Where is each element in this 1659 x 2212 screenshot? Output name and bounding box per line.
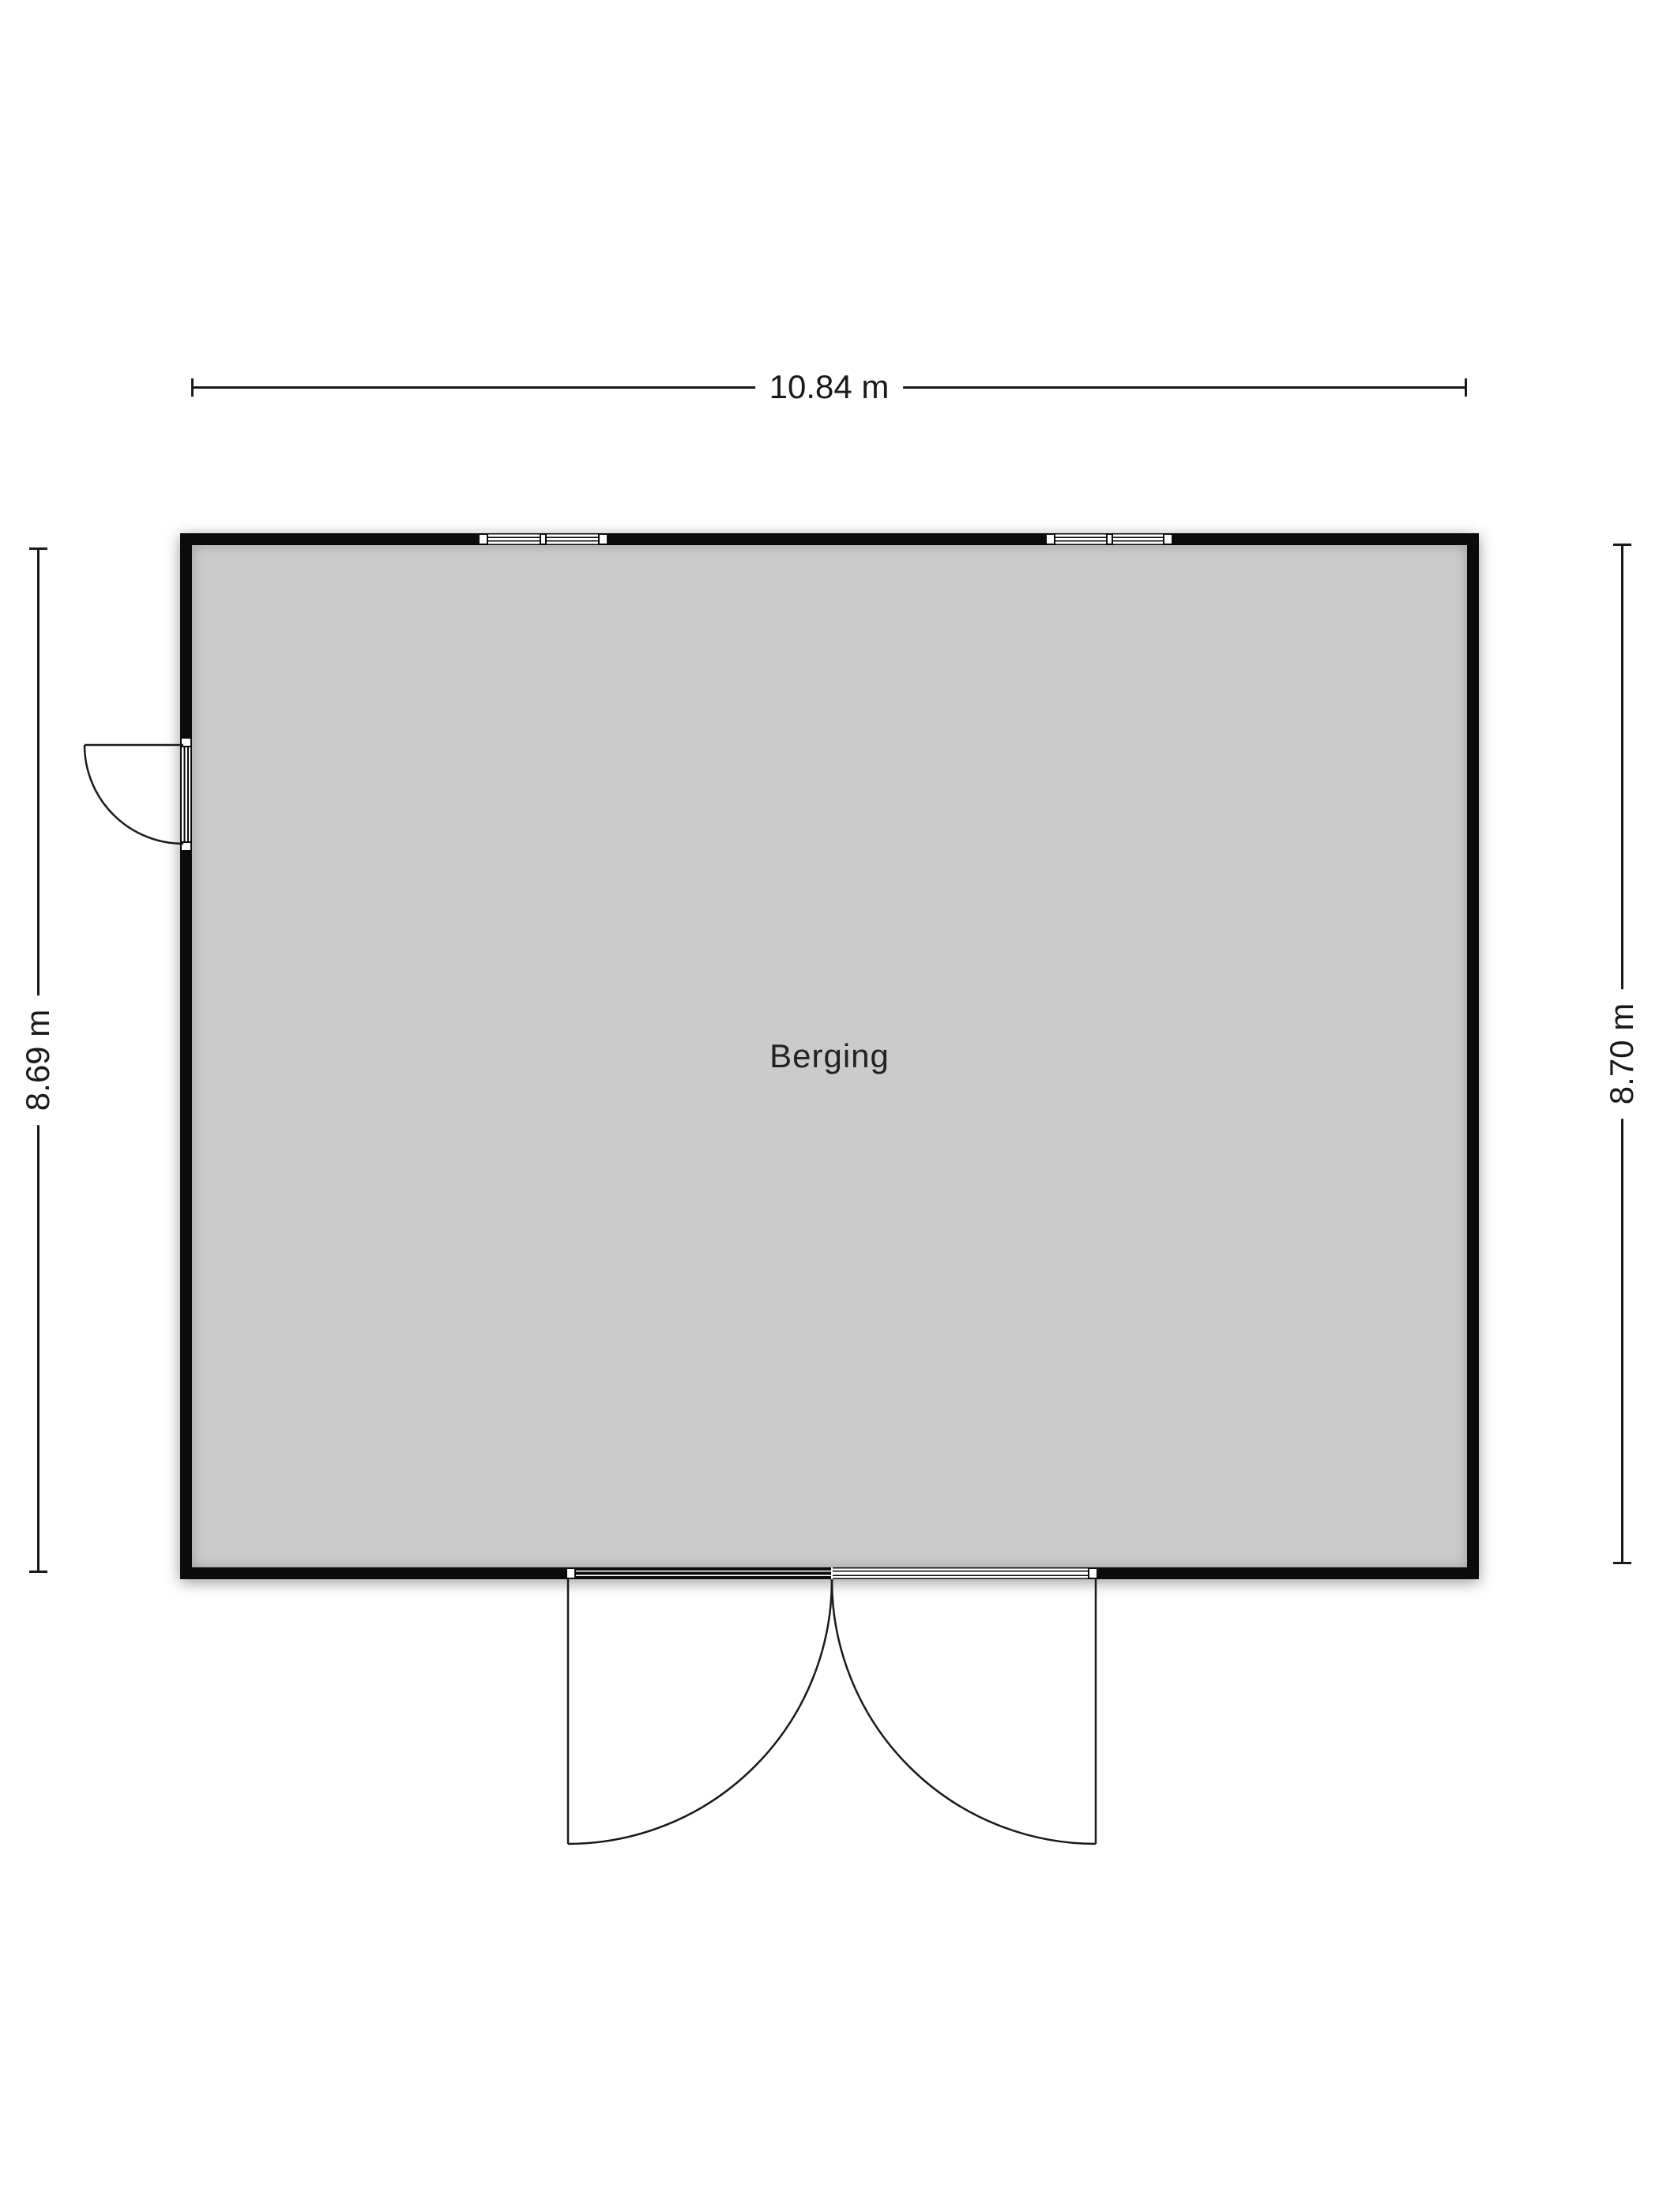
dimension-tick (29, 547, 47, 550)
window-glass (1055, 533, 1106, 545)
window-jamb (1163, 533, 1173, 545)
door-leaf-left (576, 1567, 831, 1579)
floorplan-canvas: 10.84 m 8.69 m 8.70 m Berging (0, 0, 1659, 2212)
dimension-tick (1613, 544, 1631, 546)
dimension-top: 10.84 m (191, 371, 1467, 405)
window-symbol-left (478, 533, 608, 545)
window-glass (547, 533, 598, 545)
dimension-label-left: 8.69 m (19, 995, 57, 1125)
dimension-left: 8.69 m (21, 547, 56, 1573)
dimension-tick (1465, 378, 1467, 397)
room-outline: Berging (180, 533, 1479, 1579)
dimension-tick (29, 1571, 47, 1573)
window-jamb (1045, 533, 1055, 545)
door-leaf-right (833, 1567, 1088, 1579)
room-label: Berging (769, 1037, 890, 1075)
door-swing-arcs-bottom (566, 1579, 1098, 1848)
dimension-tick (191, 378, 194, 397)
window-mullion (1106, 533, 1113, 545)
window-glass (488, 533, 540, 545)
window-mullion (540, 533, 547, 545)
dimension-right: 8.70 m (1605, 544, 1640, 1564)
dimension-label-right: 8.70 m (1603, 989, 1641, 1119)
door-jamb (566, 1567, 576, 1579)
dimension-label-top: 10.84 m (755, 368, 904, 406)
window-jamb (598, 533, 608, 545)
window-glass (1113, 533, 1164, 545)
dimension-tick (1613, 1562, 1631, 1564)
double-door-symbol-bottom (566, 1567, 1098, 1579)
door-jamb (1088, 1567, 1098, 1579)
window-symbol-right (1045, 533, 1173, 545)
door-swing-arc-left (83, 741, 186, 848)
window-jamb (478, 533, 488, 545)
